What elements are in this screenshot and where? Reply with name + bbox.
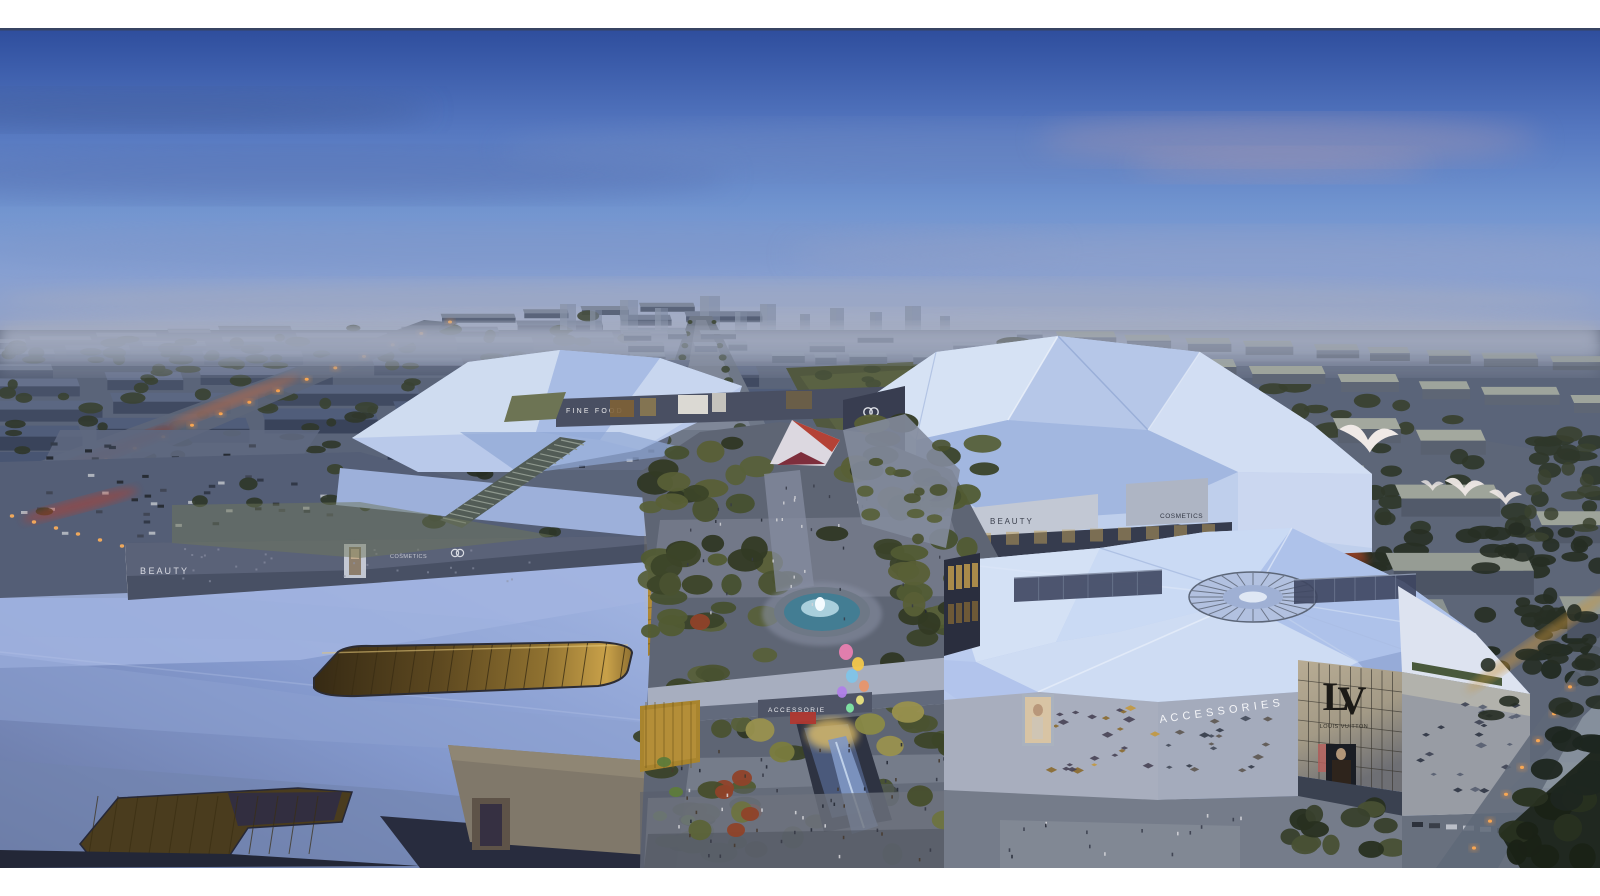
svg-text:L: L: [1323, 674, 1350, 719]
svg-text:COSMETICS: COSMETICS: [1160, 513, 1203, 520]
svg-text:B E A U T Y: B E A U T Y: [140, 566, 187, 576]
svg-text:COSMETICS: COSMETICS: [390, 554, 427, 560]
svg-text:LOUIS VUITTON: LOUIS VUITTON: [1320, 724, 1369, 730]
svg-text:B E A U T Y: B E A U T Y: [990, 517, 1032, 526]
